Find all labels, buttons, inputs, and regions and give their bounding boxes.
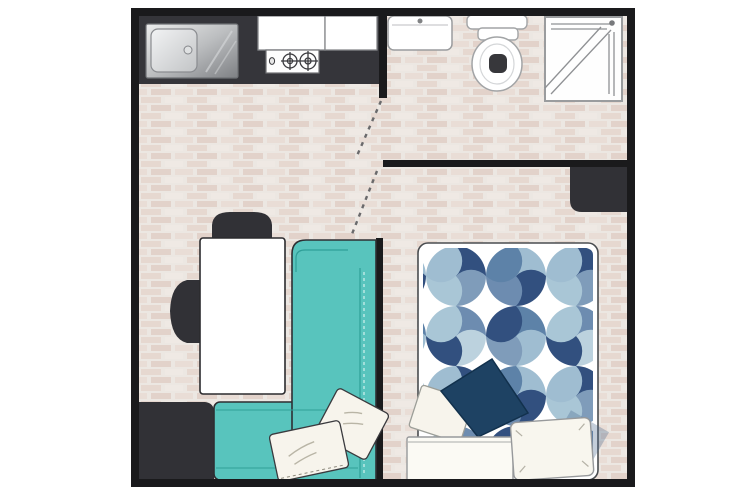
cooktop (266, 50, 319, 73)
wall-living-bedroom (376, 238, 383, 487)
table (200, 238, 285, 394)
chair-top (212, 212, 272, 238)
bathroom-washbasin (388, 16, 452, 50)
kitchen-sink (146, 24, 238, 78)
shower-drain-dot (609, 20, 615, 26)
floor-plan-canvas (0, 0, 750, 500)
toilet-drain (489, 54, 507, 73)
bed (407, 243, 609, 481)
kitchen-cabinet-left (258, 16, 325, 50)
outer-wall-top (131, 8, 635, 16)
storage-block (139, 402, 214, 479)
bed-pillow-white-right (510, 417, 594, 480)
closet (570, 167, 635, 212)
bed-pillow-white-left (407, 437, 513, 481)
toilet-tank (467, 15, 527, 29)
faucet-dot (418, 19, 423, 24)
wall-kitchen-bathroom (379, 16, 387, 98)
floor-plan-image (0, 0, 750, 500)
kitchen-cabinet-right (325, 16, 377, 50)
sink-drain (184, 46, 192, 54)
outer-wall-bottom (131, 479, 635, 487)
outer-wall-right (627, 8, 635, 487)
cooktop-knob (269, 58, 274, 65)
wall-bathroom-bedroom (383, 160, 635, 167)
shower (545, 17, 622, 101)
outer-wall-left (131, 8, 139, 487)
toilet (467, 15, 527, 91)
